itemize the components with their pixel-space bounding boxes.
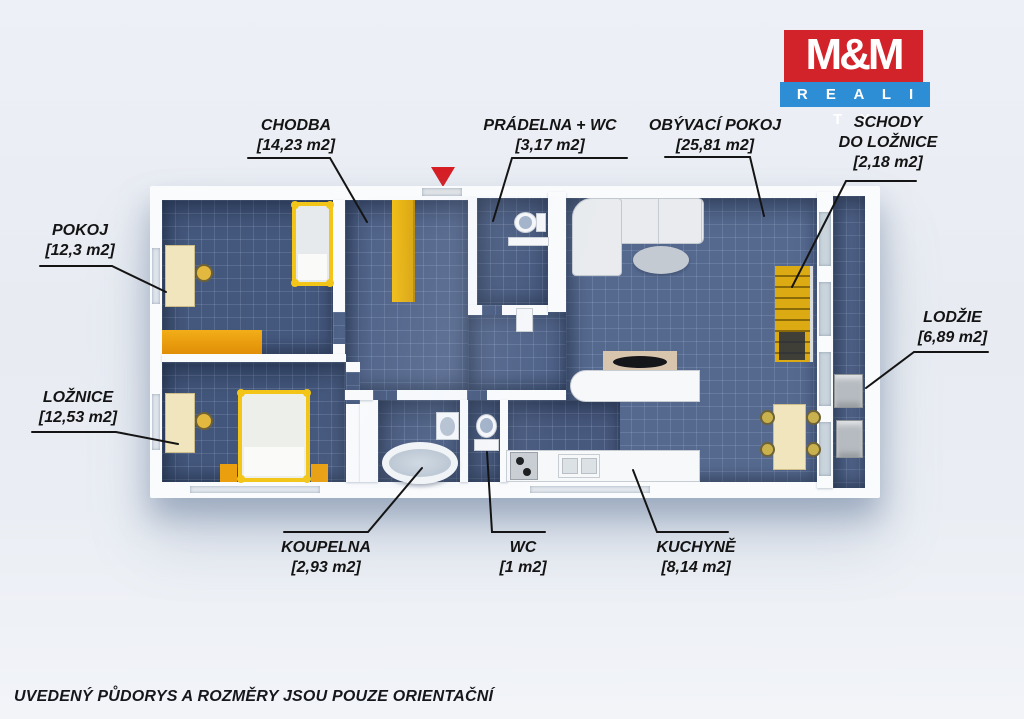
leader-line-obyvaci bbox=[665, 157, 764, 216]
room-area: [2,18 m2] bbox=[818, 153, 958, 173]
leader-lines bbox=[0, 0, 1024, 719]
room-name: KOUPELNA bbox=[256, 538, 396, 558]
room-name: LOŽNICE bbox=[8, 388, 148, 408]
room-name: OBÝVACÍ POKOJ bbox=[630, 116, 800, 136]
room-name: CHODBA bbox=[226, 116, 366, 136]
leader-line-pradelna bbox=[493, 158, 627, 221]
room-name: LODŽIE bbox=[885, 308, 1020, 328]
room-area: [8,14 m2] bbox=[630, 558, 762, 578]
leader-line-kuchyne bbox=[633, 470, 728, 532]
leader-line-lodzie bbox=[866, 352, 988, 388]
floorplan-scene: M&M R E A L I T Y bbox=[0, 0, 1024, 719]
leader-line-schody bbox=[792, 181, 916, 287]
label-schody: SCHODY DO LOŽNICE [2,18 m2] bbox=[818, 113, 958, 173]
label-lodzie: LODŽIE [6,89 m2] bbox=[885, 308, 1020, 348]
label-wc: WC [1 m2] bbox=[462, 538, 584, 578]
room-area: [3,17 m2] bbox=[465, 136, 635, 156]
room-area: [1 m2] bbox=[462, 558, 584, 578]
room-name2: DO LOŽNICE bbox=[818, 133, 958, 153]
room-name: WC bbox=[462, 538, 584, 558]
label-loznice: LOŽNICE [12,53 m2] bbox=[8, 388, 148, 428]
room-area: [12,53 m2] bbox=[8, 408, 148, 428]
disclaimer-text: UVEDENÝ PŮDORYS A ROZMĚRY JSOU POUZE ORI… bbox=[14, 688, 493, 706]
leader-line-koupelna bbox=[284, 468, 422, 532]
room-name: POKOJ bbox=[20, 221, 140, 241]
room-name: PRÁDELNA + WC bbox=[465, 116, 635, 136]
label-pokoj: POKOJ [12,3 m2] bbox=[20, 221, 140, 261]
room-area: [12,3 m2] bbox=[20, 241, 140, 261]
room-area: [6,89 m2] bbox=[885, 328, 1020, 348]
leader-line-loznice bbox=[32, 432, 178, 444]
leader-line-wc bbox=[487, 452, 545, 532]
label-kuchyne: KUCHYNĚ [8,14 m2] bbox=[630, 538, 762, 578]
room-name: SCHODY bbox=[818, 113, 958, 133]
label-koupelna: KOUPELNA [2,93 m2] bbox=[256, 538, 396, 578]
label-chodba: CHODBA [14,23 m2] bbox=[226, 116, 366, 156]
room-area: [14,23 m2] bbox=[226, 136, 366, 156]
leader-line-pokoj bbox=[40, 266, 166, 292]
leader-line-chodba bbox=[248, 158, 367, 222]
room-area: [25,81 m2] bbox=[630, 136, 800, 156]
room-name: KUCHYNĚ bbox=[630, 538, 762, 558]
room-area: [2,93 m2] bbox=[256, 558, 396, 578]
label-obyvaci: OBÝVACÍ POKOJ [25,81 m2] bbox=[630, 116, 800, 156]
label-pradelna: PRÁDELNA + WC [3,17 m2] bbox=[465, 116, 635, 156]
